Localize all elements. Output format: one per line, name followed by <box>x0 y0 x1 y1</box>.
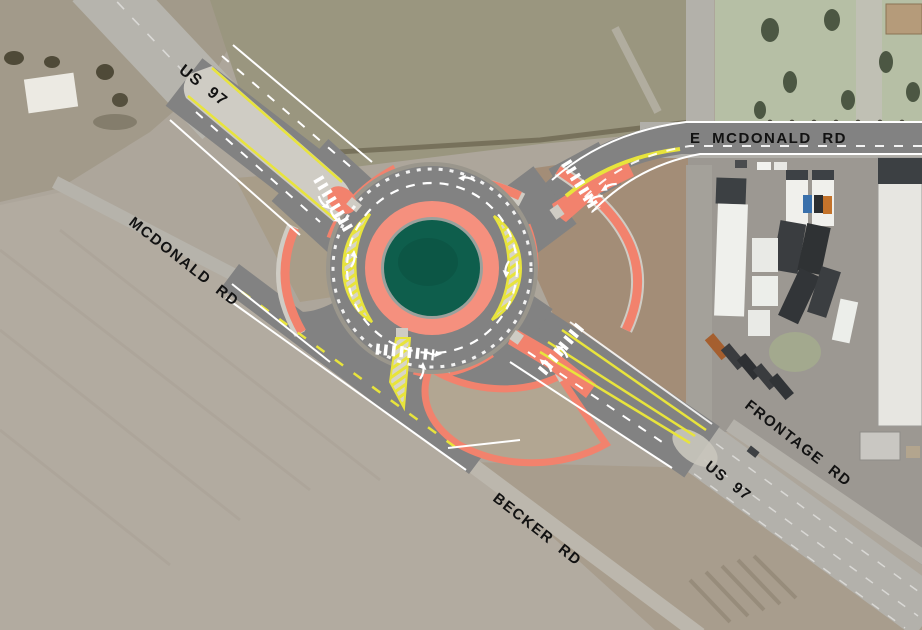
white-building <box>24 73 78 114</box>
warehouse-roof-end <box>878 158 922 184</box>
dark-van <box>814 195 823 213</box>
central-island-shade <box>398 238 458 286</box>
farm-building-northeast <box>886 4 922 34</box>
driveway-northeast <box>856 0 882 128</box>
shed <box>906 446 920 458</box>
trailer-cab <box>812 170 834 180</box>
car <box>735 160 747 168</box>
trailer <box>752 276 778 306</box>
road-label-e-mcdonald: E MCDONALD RD <box>690 130 847 147</box>
tree <box>96 64 114 80</box>
blue-van <box>803 195 812 213</box>
south-splitter-pad <box>396 328 408 337</box>
existing-north-south-road <box>686 0 714 128</box>
car <box>757 162 771 170</box>
trailer <box>748 310 770 336</box>
trailer <box>714 204 748 317</box>
tree <box>112 93 128 107</box>
trailer-cab <box>786 170 808 180</box>
aerial-map-canvas: US 97 E MCDONALD RD MCDONALD RD FRONTAGE… <box>0 0 922 630</box>
tree <box>4 51 24 65</box>
house <box>860 432 900 460</box>
trailer-cab <box>716 177 747 204</box>
trailer <box>752 238 778 272</box>
brush-shadow <box>93 114 137 130</box>
tree <box>44 56 60 68</box>
aerial-roundabout-plan: US 97 E MCDONALD RD MCDONALD RD FRONTAGE… <box>0 0 922 630</box>
warehouse <box>878 158 922 426</box>
yard-edge-road <box>686 165 712 432</box>
grass-patch <box>769 332 821 372</box>
car <box>774 162 787 170</box>
orange-van <box>823 196 832 214</box>
